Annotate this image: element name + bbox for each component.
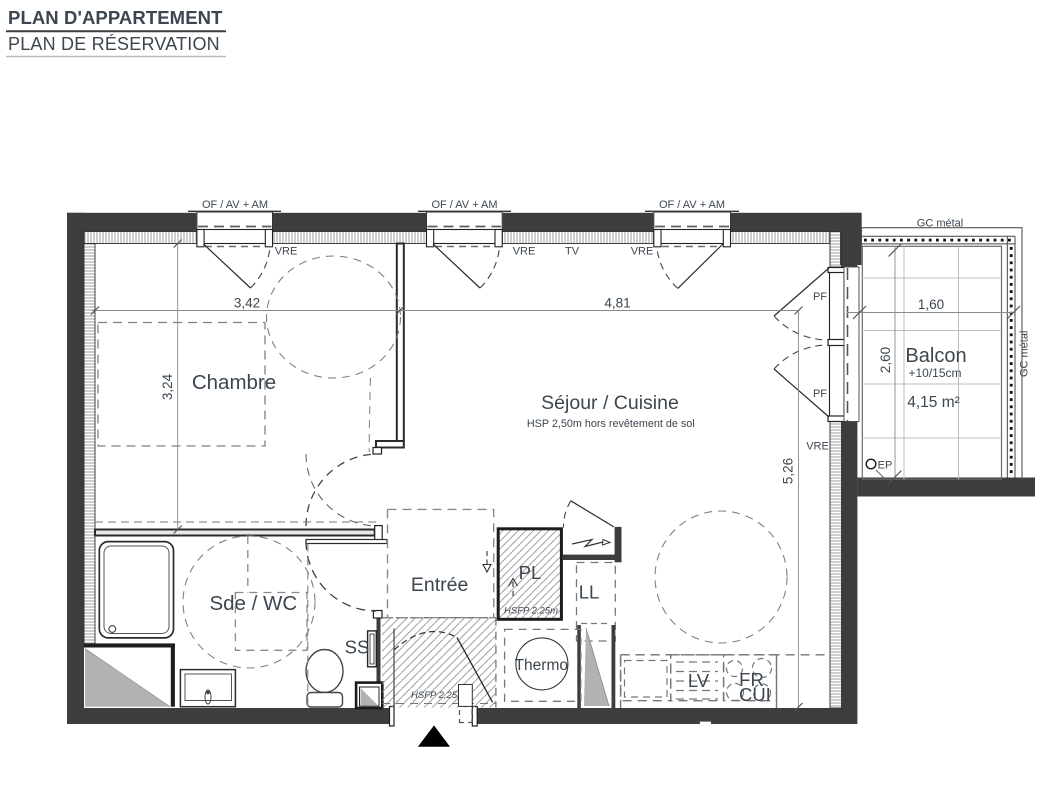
svg-text:PF: PF — [813, 291, 827, 303]
svg-text:EP: EP — [878, 460, 893, 472]
svg-text:VRE: VRE — [806, 441, 829, 453]
svg-text:OF / AV + AM: OF / AV + AM — [659, 199, 725, 211]
svg-text:2,60: 2,60 — [878, 347, 893, 373]
svg-text:HSP 2,50m hors revêtement de s: HSP 2,50m hors revêtement de sol — [527, 418, 695, 430]
svg-text:TV: TV — [565, 246, 580, 258]
svg-text:GC métal: GC métal — [917, 218, 963, 230]
svg-text:Sde / WC: Sde / WC — [209, 592, 297, 615]
svg-text:OF / AV + AM: OF / AV + AM — [202, 199, 268, 211]
svg-text:Entrée: Entrée — [411, 574, 468, 596]
svg-text:PL: PL — [519, 562, 542, 583]
svg-text:3,42: 3,42 — [234, 296, 260, 311]
svg-text:OF / AV + AM: OF / AV + AM — [431, 199, 497, 211]
svg-text:PLAN DE RÉSERVATION: PLAN DE RÉSERVATION — [8, 34, 220, 54]
svg-text:SS: SS — [345, 637, 370, 658]
svg-text:3,24: 3,24 — [160, 373, 175, 400]
svg-text:LV: LV — [688, 670, 710, 691]
svg-text:4,15 m²: 4,15 m² — [907, 394, 960, 411]
svg-text:VRE: VRE — [513, 246, 536, 258]
svg-text:PLAN D'APPARTEMENT: PLAN D'APPARTEMENT — [8, 7, 223, 28]
svg-text:CUI: CUI — [739, 684, 771, 705]
svg-text:VRE: VRE — [275, 246, 298, 258]
svg-text:HSFP 2,25m: HSFP 2,25m — [411, 690, 465, 701]
svg-text:PF: PF — [813, 388, 827, 400]
svg-text:GC métal: GC métal — [1019, 331, 1031, 377]
svg-text:HSFP 2,25m: HSFP 2,25m — [504, 606, 558, 617]
svg-text:LL: LL — [579, 582, 600, 603]
svg-text:+10/15cm: +10/15cm — [908, 366, 961, 380]
svg-text:Chambre: Chambre — [192, 371, 276, 394]
svg-text:Balcon: Balcon — [905, 345, 966, 367]
svg-text:1,60: 1,60 — [918, 297, 944, 312]
svg-text:5,26: 5,26 — [781, 458, 796, 484]
svg-text:Thermo: Thermo — [515, 657, 568, 674]
svg-text:Séjour / Cuisine: Séjour / Cuisine — [541, 392, 679, 414]
svg-text:4,81: 4,81 — [604, 296, 630, 311]
svg-text:VRE: VRE — [631, 246, 654, 258]
